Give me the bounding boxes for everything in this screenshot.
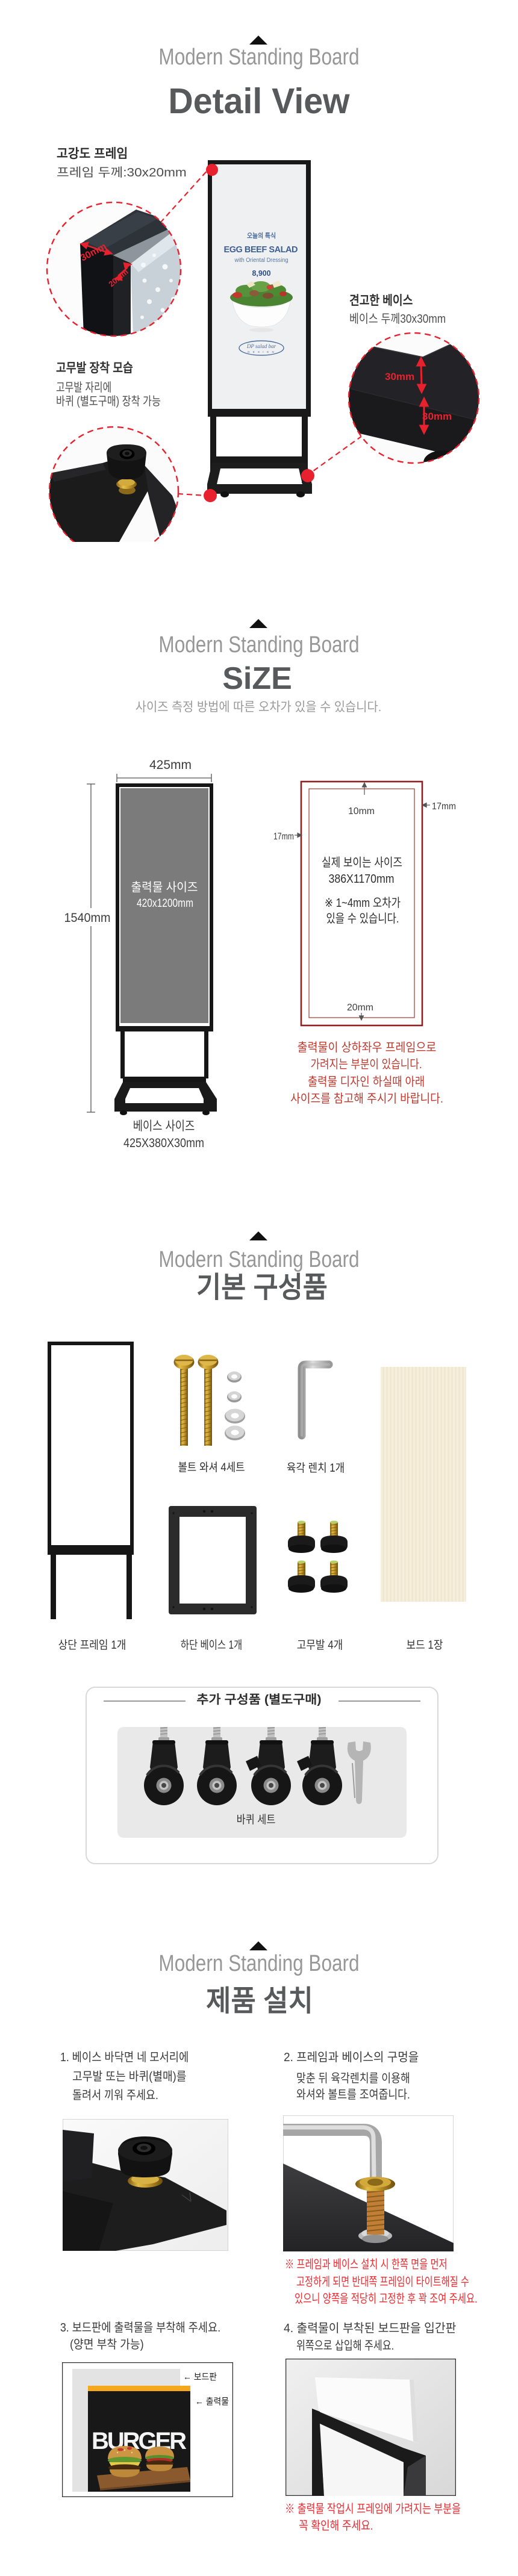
svg-text:17mm: 17mm [273, 832, 294, 842]
svg-text:20mm: 20mm [347, 1003, 373, 1013]
svg-text:D E S I G N: D E S I G N [248, 350, 275, 353]
svg-text:8,900: 8,900 [252, 269, 271, 278]
svg-text:425mm: 425mm [149, 758, 192, 772]
svg-text:with Oriental Dressing: with Oriental Dressing [234, 257, 289, 264]
svg-text:출력물 사이즈: 출력물 사이즈 [131, 880, 198, 894]
svg-text:← 출력물: ← 출력물 [195, 2397, 229, 2407]
svg-text:17mm: 17mm [432, 801, 456, 812]
svg-text:BURGER: BURGER [92, 2428, 187, 2454]
svg-text:386X1170mm: 386X1170mm [329, 873, 395, 886]
svg-text:※ 1~4mm 오차가: ※ 1~4mm 오차가 [325, 896, 401, 910]
svg-text:오늘의 특식: 오늘의 특식 [247, 231, 276, 240]
svg-text:1540mm: 1540mm [64, 911, 111, 925]
svg-text:EGG BEEF SALAD: EGG BEEF SALAD [224, 245, 298, 255]
svg-text:DP salad bar: DP salad bar [246, 343, 276, 349]
svg-text:실제 보이는 사이즈: 실제 보이는 사이즈 [322, 856, 402, 870]
svg-text:30mm: 30mm [422, 411, 452, 422]
svg-text:← 보드판: ← 보드판 [183, 2372, 217, 2382]
svg-text:420x1200mm: 420x1200mm [137, 897, 193, 910]
svg-text:있을 수 있습니다.: 있을 수 있습니다. [326, 912, 399, 926]
svg-text:30mm: 30mm [385, 371, 414, 382]
svg-text:10mm: 10mm [348, 806, 375, 817]
